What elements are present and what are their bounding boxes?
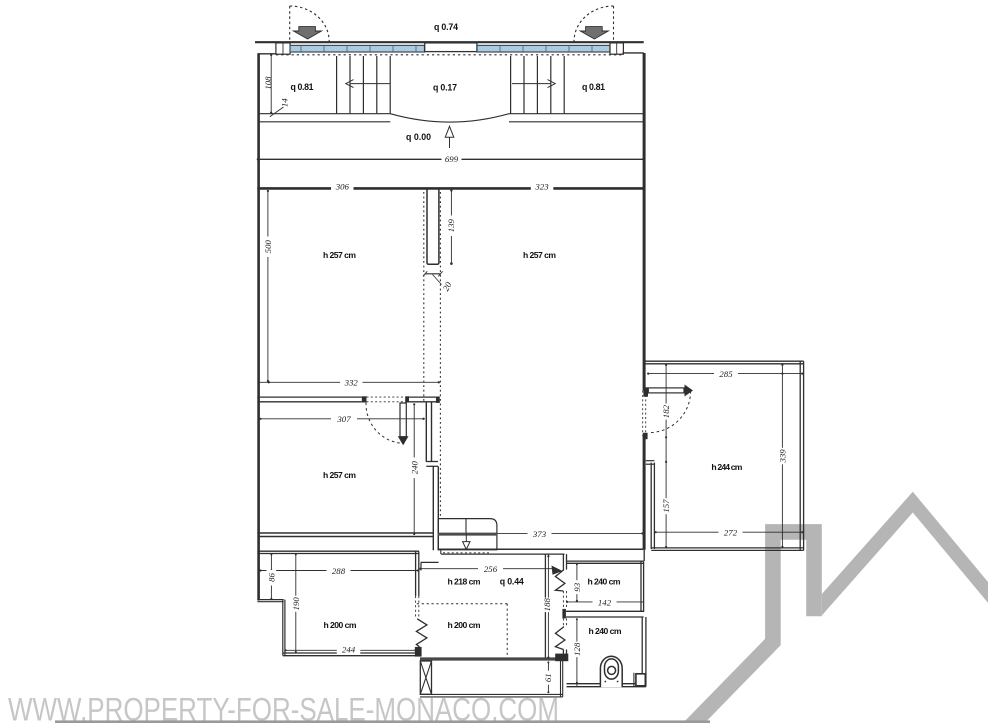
svg-text:699: 699	[445, 154, 459, 164]
svg-text:86: 86	[267, 573, 277, 582]
svg-text:h 257 cm: h 257 cm	[523, 250, 556, 260]
svg-text:q 0.74: q 0.74	[434, 22, 458, 32]
svg-text:h 240 cm: h 240 cm	[588, 577, 621, 587]
svg-text:373: 373	[532, 529, 547, 539]
svg-text:14: 14	[280, 98, 290, 107]
svg-text:272: 272	[724, 528, 738, 538]
svg-text:157: 157	[661, 499, 671, 513]
svg-text:332: 332	[344, 378, 359, 388]
svg-text:h 200 cm: h 200 cm	[324, 620, 357, 630]
svg-text:139: 139	[446, 219, 456, 233]
svg-text:306: 306	[335, 182, 350, 192]
svg-text:h 240 cm: h 240 cm	[589, 626, 622, 636]
svg-text:h 244 cm: h 244 cm	[711, 462, 742, 472]
svg-text:323: 323	[534, 182, 549, 192]
svg-text:244: 244	[342, 645, 356, 655]
svg-text:q 0.17: q 0.17	[433, 83, 457, 93]
svg-text:188: 188	[542, 598, 552, 612]
svg-text:h 200 cm: h 200 cm	[448, 620, 481, 630]
svg-text:256: 256	[484, 564, 498, 574]
svg-text:q 0.44: q 0.44	[500, 576, 524, 586]
svg-text:WWW.PROPERTY-FOR-SALE-MONACO.C: WWW.PROPERTY-FOR-SALE-MONACO.COM	[8, 691, 559, 723]
svg-text:240: 240	[409, 461, 419, 475]
svg-text:q 0.81: q 0.81	[291, 82, 314, 92]
svg-text:128: 128	[572, 642, 582, 656]
svg-text:339: 339	[778, 449, 788, 464]
svg-text:142: 142	[598, 597, 612, 607]
svg-text:93: 93	[572, 582, 582, 591]
svg-text:190: 190	[291, 597, 301, 611]
svg-text:307: 307	[336, 414, 351, 424]
svg-text:h 257 cm: h 257 cm	[323, 470, 356, 480]
svg-text:108: 108	[263, 76, 273, 90]
svg-text:h 257 cm: h 257 cm	[323, 250, 356, 260]
svg-text:500: 500	[263, 240, 273, 254]
svg-text:288: 288	[332, 566, 346, 576]
svg-text:q 0.00: q 0.00	[406, 132, 431, 142]
svg-text:61: 61	[543, 673, 553, 682]
svg-text:285: 285	[719, 369, 733, 379]
svg-text:182: 182	[661, 404, 671, 418]
svg-text:h 218 cm: h 218 cm	[448, 577, 481, 587]
svg-text:q 0.81: q 0.81	[582, 82, 605, 92]
